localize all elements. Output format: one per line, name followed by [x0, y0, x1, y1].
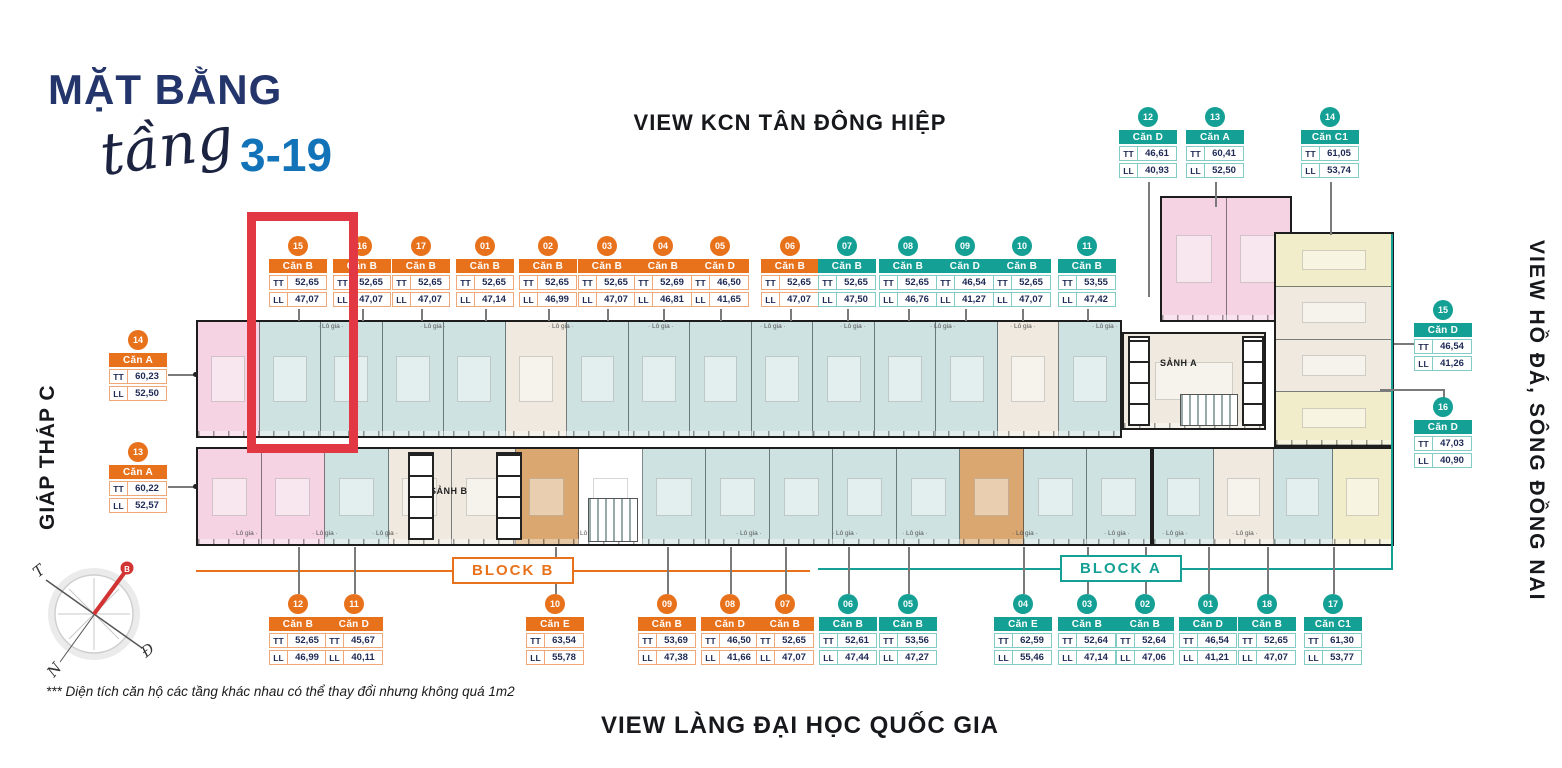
unit-label-02[interactable]: 02Căn BTT52,65LL46,99	[519, 236, 577, 307]
unit-area-key: TT	[527, 634, 545, 647]
unit-area-row: LL47,07	[761, 292, 819, 307]
connector-line	[1380, 389, 1444, 391]
unit-number-badge: 06	[838, 594, 858, 614]
unit-type-label: Căn B	[879, 617, 937, 631]
logia-label: · Lô gia ·	[1104, 530, 1130, 537]
unit-label-01[interactable]: 01Căn BTT52,65LL47,14	[456, 236, 514, 307]
unit-info-box: Căn ATT60,22LL52,57	[109, 465, 167, 513]
unit-area-value: 47,03	[1433, 438, 1471, 449]
unit-area-row: TT52,69	[634, 275, 692, 290]
unit-area-row: TT52,65	[1238, 633, 1296, 648]
unit-label-17[interactable]: 17Căn C1TT61,30LL53,77	[1304, 594, 1362, 665]
logia-label: · Lô gia ·	[832, 530, 858, 537]
unit-area-row: LL40,90	[1414, 453, 1472, 468]
unit-area-row: LL53,74	[1301, 163, 1359, 178]
unit-area-row: TT61,05	[1301, 146, 1359, 161]
unit-area-value: 55,78	[545, 652, 583, 663]
unit-area-row: LL47,38	[638, 650, 696, 665]
unit-type-label: Căn D	[1179, 617, 1237, 631]
connector-dot	[193, 372, 198, 377]
unit-area-row: LL41,66	[701, 650, 759, 665]
unit-area-value: 52,65	[898, 277, 936, 288]
unit-area-value: 46,99	[538, 294, 576, 305]
unit-number-badge: 07	[837, 236, 857, 256]
plan-unit-cell	[875, 322, 937, 436]
connector-line	[1215, 182, 1217, 207]
staircase	[1180, 394, 1238, 426]
connector-line	[730, 547, 732, 594]
unit-area-row: LL47,06	[1116, 650, 1174, 665]
unit-area-row: TT52,64	[1058, 633, 1116, 648]
unit-area-row: TT53,56	[879, 633, 937, 648]
unit-area-key: TT	[639, 634, 657, 647]
unit-area-row: TT46,54	[1179, 633, 1237, 648]
unit-type-label: Căn A	[1186, 130, 1244, 144]
unit-area-key: TT	[995, 634, 1013, 647]
unit-info-box: Căn DTT46,50LL41,66	[701, 617, 759, 665]
unit-area-key: TT	[1059, 276, 1077, 289]
unit-area-key: TT	[880, 634, 898, 647]
unit-area-key: LL	[326, 651, 344, 664]
connector-line	[908, 547, 910, 594]
unit-area-row: LL47,14	[1058, 650, 1116, 665]
unit-area-value: 46,81	[653, 294, 691, 305]
unit-area-key: TT	[702, 634, 720, 647]
view-label-right: VIEW HỒ ĐÁ, SÔNG ĐỒNG NAI	[1524, 240, 1548, 720]
unit-label-11[interactable]: 11Căn BTT53,55LL47,42	[1058, 236, 1116, 307]
logia-label: · Lô gia ·	[736, 530, 762, 537]
unit-area-key: TT	[1120, 147, 1138, 160]
connector-dot	[193, 484, 198, 489]
unit-label-12[interactable]: 12Căn BTT52,65LL46,99	[269, 594, 327, 665]
unit-info-box: Căn BTT52,61LL47,44	[819, 617, 877, 665]
unit-area-key: TT	[1415, 340, 1433, 353]
unit-info-box: Căn BTT52,65LL47,07	[761, 259, 819, 307]
unit-area-row: LL41,65	[691, 292, 749, 307]
unit-area-row: LL41,27	[936, 292, 994, 307]
unit-number-badge: 07	[775, 594, 795, 614]
unit-label-14[interactable]: 14Căn C1TT61,05LL53,74	[1301, 107, 1359, 178]
unit-area-key: TT	[393, 276, 411, 289]
unit-area-value: 46,76	[898, 294, 936, 305]
connector-line	[421, 309, 423, 321]
unit-area-value: 55,46	[1013, 652, 1051, 663]
unit-area-key: LL	[702, 651, 720, 664]
connector-line	[1148, 182, 1150, 297]
connector-line	[298, 547, 300, 594]
unit-info-box: Căn DTT46,50LL41,65	[691, 259, 749, 307]
unit-area-value: 52,65	[775, 635, 813, 646]
view-label-left: GIÁP THÁP C	[36, 330, 60, 530]
unit-type-label: Căn B	[519, 259, 577, 273]
unit-area-value: 52,65	[411, 277, 449, 288]
plan-unit-cell	[1333, 449, 1392, 544]
unit-area-value: 52,64	[1135, 635, 1173, 646]
unit-info-box: Căn BTT52,65LL46,99	[269, 617, 327, 665]
unit-area-key: LL	[1305, 651, 1323, 664]
unit-area-value: 52,65	[538, 277, 576, 288]
unit-label-10[interactable]: 10Căn BTT52,65LL47,07	[993, 236, 1051, 307]
unit-type-label: Căn D	[1414, 323, 1472, 337]
plan-band-pink-block	[1160, 196, 1292, 322]
unit-type-label: Căn B	[993, 259, 1051, 273]
unit-info-box: Căn BTT52,65LL47,07	[578, 259, 636, 307]
block-a-bracket-line	[1391, 234, 1393, 570]
unit-area-value: 61,05	[1320, 148, 1358, 159]
unit-number-badge: 17	[411, 236, 431, 256]
connector-line	[1394, 343, 1415, 345]
unit-label-01[interactable]: 01Căn DTT46,54LL41,21	[1179, 594, 1237, 665]
unit-area-key: TT	[819, 276, 837, 289]
unit-area-key: TT	[110, 370, 128, 383]
unit-type-label: Căn D	[325, 617, 383, 631]
unit-label-12[interactable]: 12Căn DTT46,61LL40,93	[1119, 107, 1177, 178]
unit-area-row: TT61,30	[1304, 633, 1362, 648]
logia-label: · Lô gia ·	[548, 323, 574, 330]
unit-area-value: 47,06	[1135, 652, 1173, 663]
plan-unit-cell	[383, 322, 445, 436]
unit-area-value: 40,90	[1433, 455, 1471, 466]
connector-line	[785, 547, 787, 594]
unit-info-box: Căn BTT52,65LL47,07	[993, 259, 1051, 307]
plan-unit-cell	[1276, 234, 1392, 287]
unit-number-badge: 03	[1077, 594, 1097, 614]
unit-label-02[interactable]: 02Căn BTT52,64LL47,06	[1116, 594, 1174, 665]
unit-label-06[interactable]: 06Căn BTT52,65LL47,07	[761, 236, 819, 307]
plan-unit-cell	[936, 322, 998, 436]
unit-area-value: 52,65	[780, 277, 818, 288]
plan-band-bottom-band	[196, 447, 1152, 546]
unit-info-box: Căn BTT53,55LL47,42	[1058, 259, 1116, 307]
unit-area-value: 53,56	[898, 635, 936, 646]
unit-area-row: TT45,67	[325, 633, 383, 648]
unit-area-row: TT52,65	[993, 275, 1051, 290]
unit-area-key: TT	[692, 276, 710, 289]
unit-area-key: LL	[692, 293, 710, 306]
unit-area-row: LL47,07	[392, 292, 450, 307]
compass-south-label: N	[43, 658, 66, 681]
unit-info-box: Căn BTT52,64LL47,14	[1058, 617, 1116, 665]
unit-area-key: TT	[110, 482, 128, 495]
unit-area-row: LL47,42	[1058, 292, 1116, 307]
unit-area-row: TT60,22	[109, 481, 167, 496]
unit-area-row: TT46,50	[701, 633, 759, 648]
unit-area-key: LL	[762, 293, 780, 306]
unit-area-row: LL55,78	[526, 650, 584, 665]
unit-area-value: 47,07	[780, 294, 818, 305]
unit-area-value: 45,67	[344, 635, 382, 646]
unit-area-key: TT	[994, 276, 1012, 289]
unit-label-18[interactable]: 18Căn BTT52,65LL47,07	[1238, 594, 1296, 665]
unit-type-label: Căn B	[1116, 617, 1174, 631]
unit-area-value: 41,65	[710, 294, 748, 305]
compass: B T Đ N	[28, 546, 164, 686]
unit-area-key: LL	[457, 293, 475, 306]
unit-label-14[interactable]: 14Căn ATT60,23LL52,50	[109, 330, 167, 401]
connector-line	[848, 547, 850, 594]
unit-label-03[interactable]: 03Căn BTT52,65LL47,07	[578, 236, 636, 307]
unit-type-label: Căn B	[578, 259, 636, 273]
connector-line	[1087, 309, 1089, 321]
unit-area-key: LL	[270, 651, 288, 664]
unit-type-label: Căn B	[1058, 617, 1116, 631]
unit-area-value: 40,11	[344, 652, 382, 663]
unit-area-key: LL	[1059, 651, 1077, 664]
plan-unit-cell	[643, 449, 707, 544]
page-title: MẶT BẰNG tầng 3-19	[48, 66, 378, 114]
unit-type-label: Căn B	[1238, 617, 1296, 631]
unit-area-value: 40,93	[1138, 165, 1176, 176]
unit-area-key: TT	[1187, 147, 1205, 160]
unit-area-key: LL	[995, 651, 1013, 664]
unit-label-13[interactable]: 13Căn ATT60,22LL52,57	[109, 442, 167, 513]
connector-line	[1330, 182, 1332, 235]
unit-type-label: Căn D	[936, 259, 994, 273]
unit-area-value: 53,55	[1077, 277, 1115, 288]
unit-area-key: LL	[1415, 454, 1433, 467]
unit-label-08[interactable]: 08Căn DTT46,50LL41,66	[701, 594, 759, 665]
unit-area-row: LL53,77	[1304, 650, 1362, 665]
logia-label: · Lô gia ·	[930, 323, 956, 330]
unit-type-label: Căn B	[1058, 259, 1116, 273]
unit-area-row: LL46,99	[519, 292, 577, 307]
unit-area-row: TT52,61	[819, 633, 877, 648]
unit-area-value: 61,30	[1323, 635, 1361, 646]
logia-label: · Lô gia ·	[420, 323, 446, 330]
unit-area-key: LL	[1180, 651, 1198, 664]
unit-area-key: TT	[1180, 634, 1198, 647]
plan-unit-cell	[813, 322, 875, 436]
unit-area-value: 52,50	[128, 388, 166, 399]
unit-area-value: 52,65	[597, 277, 635, 288]
connector-line	[720, 309, 722, 321]
unit-number-badge: 10	[1012, 236, 1032, 256]
connector-line	[667, 547, 669, 594]
unit-area-row: LL47,44	[819, 650, 877, 665]
unit-label-07[interactable]: 07Căn BTT52,65LL47,07	[756, 594, 814, 665]
unit-type-label: Căn E	[994, 617, 1052, 631]
unit-area-row: LL55,46	[994, 650, 1052, 665]
unit-area-value: 53,77	[1323, 652, 1361, 663]
connector-line	[790, 309, 792, 321]
unit-type-label: Căn A	[109, 465, 167, 479]
unit-area-value: 46,99	[288, 652, 326, 663]
unit-area-row: TT46,50	[691, 275, 749, 290]
unit-type-label: Căn B	[456, 259, 514, 273]
unit-area-key: TT	[1059, 634, 1077, 647]
unit-area-key: TT	[757, 634, 775, 647]
plan-unit-cell	[690, 322, 752, 436]
unit-area-key: TT	[1302, 147, 1320, 160]
unit-info-box: Căn C1TT61,30LL53,77	[1304, 617, 1362, 665]
plan-unit-cell	[1276, 287, 1392, 340]
connector-line	[1267, 547, 1269, 594]
unit-area-row: LL47,07	[1238, 650, 1296, 665]
unit-type-label: Căn B	[634, 259, 692, 273]
unit-area-value: 52,69	[653, 277, 691, 288]
unit-number-badge: 03	[597, 236, 617, 256]
unit-info-box: Căn BTT52,65LL46,99	[519, 259, 577, 307]
unit-area-key: TT	[1117, 634, 1135, 647]
unit-label-08[interactable]: 08Căn BTT52,65LL46,76	[879, 236, 937, 307]
unit-area-value: 41,21	[1198, 652, 1236, 663]
unit-label-15[interactable]: 15Căn DTT46,54LL41,26	[1414, 300, 1472, 371]
unit-label-09[interactable]: 09Căn BTT53,69LL47,38	[638, 594, 696, 665]
unit-area-value: 52,65	[837, 277, 875, 288]
unit-number-badge: 01	[1198, 594, 1218, 614]
unit-area-row: TT62,59	[994, 633, 1052, 648]
connector-line	[354, 547, 356, 594]
staircase	[588, 498, 638, 542]
unit-type-label: Căn B	[638, 617, 696, 631]
unit-area-row: LL52,50	[109, 386, 167, 401]
unit-area-value: 47,14	[475, 294, 513, 305]
unit-area-value: 47,07	[597, 294, 635, 305]
unit-label-03[interactable]: 03Căn BTT52,64LL47,14	[1058, 594, 1116, 665]
elevator-shaft	[496, 452, 522, 540]
unit-type-label: Căn E	[526, 617, 584, 631]
unit-area-row: LL40,11	[325, 650, 383, 665]
unit-info-box: Căn C1TT61,05LL53,74	[1301, 130, 1359, 178]
compass-east-label: Đ	[137, 640, 158, 662]
unit-area-row: TT60,41	[1186, 146, 1244, 161]
unit-area-row: TT52,65	[756, 633, 814, 648]
connector-line	[1022, 309, 1024, 321]
plan-unit-cell	[1059, 322, 1120, 436]
connector-line	[965, 309, 967, 321]
unit-label-13[interactable]: 13Căn ATT60,41LL52,50	[1186, 107, 1244, 178]
unit-label-04[interactable]: 04Căn ETT62,59LL55,46	[994, 594, 1052, 665]
unit-type-label: Căn C1	[1301, 130, 1359, 144]
unit-number-badge: 09	[657, 594, 677, 614]
footnote: *** Diện tích căn hộ các tầng khác nhau …	[46, 684, 515, 699]
unit-area-value: 60,23	[128, 371, 166, 382]
unit-info-box: Căn BTT52,65LL47,07	[756, 617, 814, 665]
unit-area-value: 60,22	[128, 483, 166, 494]
unit-area-key: TT	[457, 276, 475, 289]
unit-area-key: TT	[1305, 634, 1323, 647]
compass-west-label: T	[29, 560, 49, 581]
unit-number-badge: 08	[898, 236, 918, 256]
unit-area-key: TT	[880, 276, 898, 289]
unit-info-box: Căn DTT46,61LL40,93	[1119, 130, 1177, 178]
unit-area-row: TT46,54	[936, 275, 994, 290]
unit-area-row: TT52,65	[578, 275, 636, 290]
unit-type-label: Căn B	[819, 617, 877, 631]
unit-number-badge: 18	[1257, 594, 1277, 614]
plan-unit-cell	[1276, 340, 1392, 393]
unit-area-key: LL	[1302, 164, 1320, 177]
unit-area-row: TT47,03	[1414, 436, 1472, 451]
unit-type-label: Căn B	[818, 259, 876, 273]
unit-area-key: LL	[1415, 357, 1433, 370]
unit-area-row: LL47,50	[818, 292, 876, 307]
unit-area-key: LL	[994, 293, 1012, 306]
unit-area-value: 52,57	[128, 500, 166, 511]
unit-number-badge: 04	[1013, 594, 1033, 614]
unit-number-badge: 02	[538, 236, 558, 256]
unit-area-value: 52,65	[1257, 635, 1295, 646]
plan-unit-cell	[1162, 198, 1227, 320]
unit-area-key: LL	[937, 293, 955, 306]
logia-label: · Lô gia ·	[1012, 530, 1038, 537]
unit-number-badge: 10	[545, 594, 565, 614]
unit-area-row: LL47,07	[993, 292, 1051, 307]
unit-area-key: LL	[639, 651, 657, 664]
logia-label: · Lô gia ·	[760, 323, 786, 330]
unit-label-05[interactable]: 05Căn BTT53,56LL47,27	[879, 594, 937, 665]
unit-info-box: Căn DTT46,54LL41,21	[1179, 617, 1237, 665]
unit-area-row: TT52,64	[1116, 633, 1174, 648]
unit-info-box: Căn DTT46,54LL41,26	[1414, 323, 1472, 371]
unit-area-key: TT	[1415, 437, 1433, 450]
unit-info-box: Căn DTT46,54LL41,27	[936, 259, 994, 307]
unit-number-badge: 05	[710, 236, 730, 256]
unit-label-04[interactable]: 04Căn BTT52,69LL46,81	[634, 236, 692, 307]
unit-area-value: 47,50	[837, 294, 875, 305]
unit-label-10[interactable]: 10Căn ETT63,54LL55,78	[526, 594, 584, 665]
unit-area-value: 53,69	[657, 635, 695, 646]
unit-type-label: Căn B	[269, 617, 327, 631]
unit-label-05[interactable]: 05Căn DTT46,50LL41,65	[691, 236, 749, 307]
unit-area-key: LL	[757, 651, 775, 664]
unit-area-key: LL	[635, 293, 653, 306]
connector-line	[362, 309, 364, 321]
unit-area-row: LL46,81	[634, 292, 692, 307]
unit-area-key: TT	[270, 634, 288, 647]
unit-area-key: LL	[579, 293, 597, 306]
plan-unit-cell	[506, 322, 568, 436]
connector-line	[908, 309, 910, 321]
plan-unit-cell	[770, 449, 834, 544]
unit-label-16[interactable]: 16Căn DTT47,03LL40,90	[1414, 397, 1472, 468]
unit-info-box: Căn ETT62,59LL55,46	[994, 617, 1052, 665]
unit-label-11[interactable]: 11Căn DTT45,67LL40,11	[325, 594, 383, 665]
unit-label-17[interactable]: 17Căn BTT52,65LL47,07	[392, 236, 450, 307]
unit-area-row: LL40,93	[1119, 163, 1177, 178]
logia-label: · Lô gia ·	[902, 530, 928, 537]
unit-area-value: 47,27	[898, 652, 936, 663]
unit-info-box: Căn BTT53,69LL47,38	[638, 617, 696, 665]
unit-area-row: TT63,54	[526, 633, 584, 648]
unit-area-value: 52,50	[1205, 165, 1243, 176]
logia-label: · Lô gia ·	[372, 530, 398, 537]
unit-area-key: TT	[762, 276, 780, 289]
unit-area-value: 46,54	[955, 277, 993, 288]
unit-area-value: 47,44	[838, 652, 876, 663]
unit-label-09[interactable]: 09Căn DTT46,54LL41,27	[936, 236, 994, 307]
unit-number-badge: 12	[288, 594, 308, 614]
plan-band-bottom-right-band	[1152, 447, 1394, 546]
unit-area-row: TT52,65	[269, 633, 327, 648]
unit-label-07[interactable]: 07Căn BTT52,65LL47,50	[818, 236, 876, 307]
elevator-shaft	[408, 452, 434, 540]
unit-area-value: 46,50	[710, 277, 748, 288]
elevator-shaft	[1242, 336, 1264, 426]
unit-type-label: Căn D	[701, 617, 759, 631]
unit-number-badge: 01	[475, 236, 495, 256]
unit-area-key: LL	[520, 293, 538, 306]
compass-north-label: B	[124, 565, 130, 574]
connector-line	[1208, 547, 1210, 594]
unit-number-badge: 09	[955, 236, 975, 256]
connector-line	[847, 309, 849, 321]
unit-number-badge: 15	[1433, 300, 1453, 320]
unit-number-badge: 14	[1320, 107, 1340, 127]
unit-area-row: LL41,21	[1179, 650, 1237, 665]
unit-label-06[interactable]: 06Căn BTT52,61LL47,44	[819, 594, 877, 665]
unit-area-value: 62,59	[1013, 635, 1051, 646]
